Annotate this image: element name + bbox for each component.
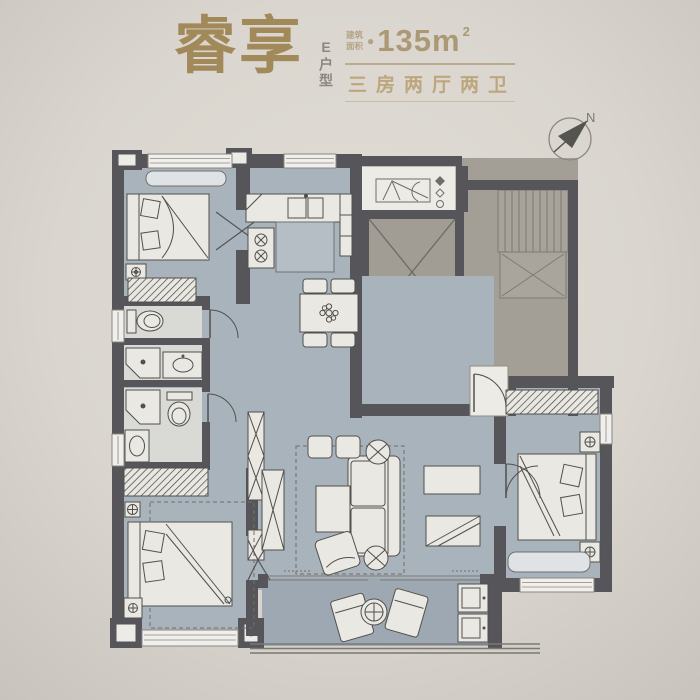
compass: N — [549, 110, 595, 160]
lamp-icon — [585, 437, 595, 447]
wardrobe — [506, 390, 598, 414]
floorplan-svg: N — [0, 0, 700, 700]
kitchen-island — [276, 222, 334, 272]
floorplan-page: 睿享 E户型 建筑 面积 ● 135m 2 三房两厅两卫 — [0, 0, 700, 700]
north-label: N — [586, 110, 595, 125]
entry-console — [424, 466, 480, 494]
plant-icon — [129, 604, 138, 613]
coffee-table — [316, 486, 350, 532]
stairwell — [498, 190, 568, 298]
north-arrow-icon — [554, 120, 588, 152]
plant-icon — [132, 268, 141, 277]
floor-drain-icon — [125, 502, 140, 517]
entry-door — [470, 366, 508, 416]
wardrobe — [124, 468, 208, 496]
wardrobe — [128, 278, 196, 302]
